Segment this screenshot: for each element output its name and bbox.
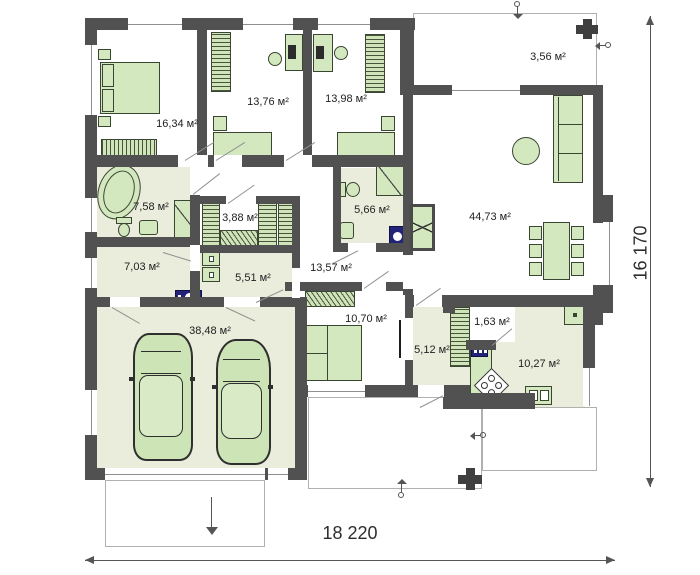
door-leaf: [399, 320, 401, 358]
dining-chair-icon: [571, 262, 584, 276]
arrow-circle: [480, 432, 486, 438]
arrow-head: [206, 527, 218, 535]
kitchen-terrace: [482, 407, 597, 471]
wall-segment: [583, 313, 595, 370]
wall-segment: [593, 85, 603, 195]
side-door: [268, 468, 288, 480]
arrow-line: [401, 483, 402, 492]
entrance-arrow-icon: [396, 479, 406, 498]
pillow-icon: [102, 64, 114, 87]
dimension-arrow: [646, 478, 654, 487]
chair-icon: [268, 52, 282, 66]
floor-plan: 16,34 м² 13,76 м² 13,98 м² 3,56 м² 44,73…: [0, 0, 700, 575]
pillow-icon: [102, 89, 114, 112]
appliance-dot: [209, 256, 214, 262]
monitor-icon: [288, 45, 296, 59]
window: [85, 45, 97, 115]
car-icon: [133, 333, 193, 461]
dining-chair-icon: [571, 244, 584, 258]
wall-segment: [333, 163, 341, 250]
appliance-icon: [202, 267, 220, 282]
toilet-bowl-icon: [346, 182, 360, 197]
car-icon: [216, 339, 271, 465]
wardrobe-icon: [211, 32, 231, 92]
dimension-height-label: 16 170: [631, 225, 652, 280]
dining-chair-icon: [529, 226, 542, 240]
door-opening: [214, 155, 242, 167]
wall-segment: [85, 155, 413, 167]
door-opening: [418, 385, 444, 397]
arrow-circle: [605, 42, 611, 48]
room-label-kitchen: 10,27 м²: [518, 358, 560, 370]
door-direction-marker: [470, 431, 486, 441]
room-label-utility: 5,51 м²: [235, 272, 271, 284]
dw-dot: [474, 350, 477, 353]
door-opening: [348, 243, 376, 252]
passage-opening: [403, 255, 413, 289]
closet-rack-icon: [202, 202, 220, 247]
terrace-door: [452, 85, 520, 95]
garage-door: [105, 468, 265, 480]
dw-dot: [479, 350, 482, 353]
window: [318, 18, 370, 30]
room-label-bedroom3: 13,98 м²: [325, 93, 367, 105]
entrance-arrow-icon: [512, 1, 522, 19]
room-label-bedroom2: 13,76 м²: [247, 96, 289, 108]
window: [85, 390, 97, 435]
sofa-cushion-line: [558, 124, 583, 125]
nightstand-icon: [213, 116, 227, 131]
porch-area: [413, 13, 597, 87]
shower-icon: [376, 166, 404, 196]
closet-rack-icon: [258, 202, 277, 247]
wall-segment: [400, 18, 414, 95]
window: [243, 18, 293, 30]
room-label-garage: 38,48 м²: [189, 325, 231, 337]
window: [583, 368, 595, 406]
car-mirror: [268, 385, 273, 389]
car-windshield: [223, 381, 260, 382]
dining-chair-icon: [571, 226, 584, 240]
car-cabin: [139, 375, 183, 437]
dimension-arrow: [606, 556, 615, 564]
burner-icon: [479, 381, 489, 391]
wall-segment: [443, 393, 535, 409]
wall-segment: [197, 22, 207, 155]
door-opening: [110, 297, 140, 307]
toilet-bowl-icon: [118, 223, 130, 237]
column-icon: [576, 19, 598, 39]
dimension-width-label: 18 220: [322, 523, 377, 544]
door-opening: [284, 155, 312, 167]
car-windshield: [141, 373, 181, 374]
door-opening: [224, 297, 260, 307]
room-label-bedroom1: 16,34 м²: [156, 118, 198, 130]
door-opening: [405, 318, 413, 360]
sofa-back-line: [558, 97, 559, 181]
door-direction-marker: [595, 41, 611, 51]
room-label-pantry: 1,63 м²: [474, 316, 510, 328]
garage-arrow-icon: [205, 497, 217, 537]
room-label-wardrobe: 3,88 м²: [222, 212, 258, 224]
sink-icon: [139, 220, 158, 235]
wardrobe-icon: [305, 291, 355, 307]
monitor-icon: [316, 46, 324, 59]
wall-segment: [303, 22, 312, 155]
dimension-line-bottom: [85, 560, 615, 561]
burner-icon: [487, 373, 497, 383]
kitchen-sink-icon: [540, 390, 549, 401]
washer-door-icon: [393, 232, 402, 241]
wall-segment: [443, 295, 455, 313]
car-hood-line: [141, 351, 181, 352]
dining-chair-icon: [529, 244, 542, 258]
unit-dot: [573, 313, 577, 317]
nightstand-icon: [98, 116, 111, 127]
car-hood-line: [223, 359, 260, 360]
dw-dot: [484, 350, 487, 353]
room-label-bathroom2: 5,66 м²: [354, 204, 390, 216]
room-label-porch: 3,56 м²: [530, 51, 566, 63]
arrow-circle: [398, 492, 404, 498]
room-label-hallway: 13,57 м²: [310, 262, 352, 274]
window: [85, 258, 97, 288]
nightstand-icon: [381, 116, 395, 131]
arrow-head: [513, 14, 523, 19]
arrow-head: [470, 432, 475, 440]
arrow-head: [397, 479, 407, 484]
car-cabin: [221, 383, 262, 439]
arrow-line: [211, 497, 212, 529]
wardrobe-icon: [365, 34, 385, 93]
car-mirror: [190, 377, 195, 381]
fireplace-icon: [410, 204, 435, 251]
coffee-table-icon: [512, 137, 540, 165]
window: [603, 222, 615, 285]
column-icon: [458, 468, 482, 490]
wall-segment: [593, 195, 613, 223]
dimension-arrow: [646, 16, 654, 25]
car-mirror: [129, 377, 134, 381]
window: [308, 385, 365, 397]
door-opening: [190, 245, 200, 271]
room-label-entryhall: 5,12 м²: [414, 344, 450, 356]
sink-icon: [340, 222, 354, 239]
arrow-head: [595, 42, 600, 50]
appliance-icon: [202, 251, 220, 266]
room-label-living: 44,73 м²: [469, 211, 511, 223]
wall-segment: [85, 237, 200, 247]
car-mirror: [212, 385, 217, 389]
dining-table-icon: [543, 222, 570, 280]
chair-icon: [334, 46, 348, 60]
wall-segment: [285, 282, 413, 291]
room-label-bedroom4: 10,70 м²: [345, 313, 387, 325]
burner-icon: [494, 381, 504, 391]
room-label-bathroom1: 7,58 м²: [133, 201, 169, 213]
dimension-arrow: [85, 556, 94, 564]
hanger-rail-icon: [220, 230, 258, 246]
door-opening: [292, 268, 300, 298]
garage-driveway: [105, 480, 265, 547]
closet-rack-icon: [450, 307, 470, 367]
window: [85, 198, 97, 232]
sofa-cushion-line: [558, 153, 583, 154]
room-label-laundry: 7,03 м²: [124, 261, 160, 273]
entrance-terrace: [308, 397, 482, 489]
window: [128, 18, 182, 30]
bed-divider-line: [327, 326, 328, 380]
nightstand-icon: [98, 49, 111, 60]
dining-chair-icon: [529, 262, 542, 276]
wardrobe-icon: [101, 139, 157, 156]
appliance-dot: [209, 272, 214, 278]
wall-segment: [200, 245, 300, 253]
door-opening: [178, 155, 208, 167]
